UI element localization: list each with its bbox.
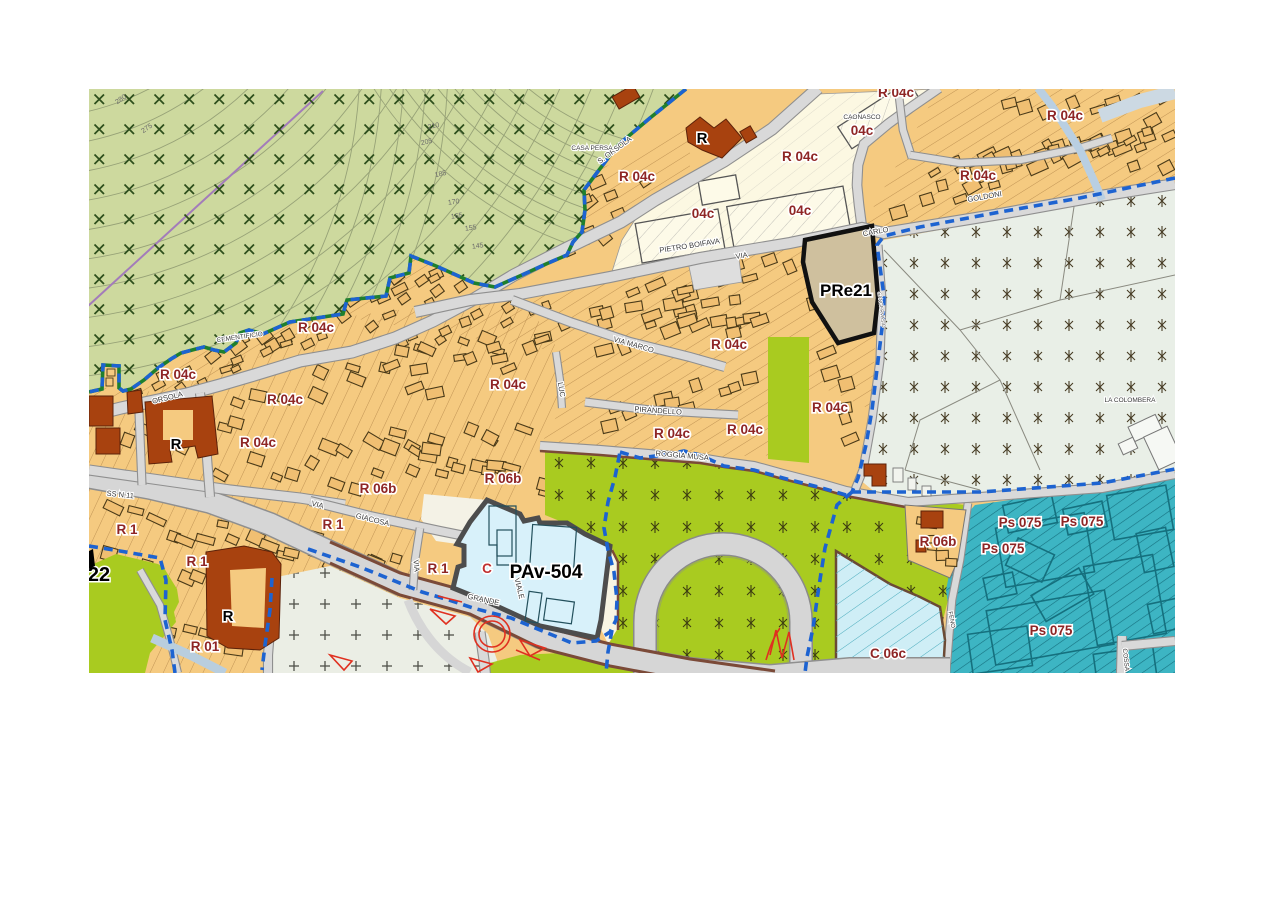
svg-text:R 04c: R 04c	[267, 392, 304, 407]
svg-text:Ps 075: Ps 075	[999, 515, 1042, 530]
svg-text:PRe21: PRe21	[820, 281, 872, 300]
svg-text:CAONASCO: CAONASCO	[843, 114, 880, 121]
svg-text:R 06b: R 06b	[485, 471, 522, 486]
svg-text:R: R	[697, 130, 708, 147]
svg-text:04c: 04c	[851, 123, 874, 138]
svg-text:R 04c: R 04c	[619, 169, 656, 184]
svg-text:R 04c: R 04c	[711, 337, 748, 352]
svg-text:C 06c: C 06c	[870, 646, 907, 661]
svg-text:R 01: R 01	[191, 639, 220, 654]
svg-text:R 04c: R 04c	[782, 149, 819, 164]
svg-text:R 1: R 1	[186, 554, 208, 569]
svg-text:04c: 04c	[789, 203, 812, 218]
svg-text:R 1: R 1	[322, 517, 344, 532]
svg-text:04c: 04c	[692, 206, 715, 221]
svg-text:R 1: R 1	[427, 561, 449, 576]
svg-text:R 04c: R 04c	[1047, 108, 1084, 123]
svg-text:CASA PERSA: CASA PERSA	[571, 145, 613, 152]
svg-text:VIA: VIA	[411, 559, 421, 572]
svg-text:R 04c: R 04c	[727, 422, 764, 437]
svg-text:Ps 075: Ps 075	[982, 541, 1025, 556]
svg-text:R 1: R 1	[116, 522, 138, 537]
svg-text:R 04c: R 04c	[160, 367, 197, 382]
svg-text:R: R	[223, 608, 234, 625]
svg-text:R 06b: R 06b	[360, 481, 397, 496]
svg-text:LA COLOMBERA: LA COLOMBERA	[1105, 397, 1157, 404]
svg-text:R 06b: R 06b	[920, 534, 957, 549]
svg-text:C: C	[482, 561, 492, 576]
svg-text:R 04c: R 04c	[298, 320, 335, 335]
svg-text:VIA: VIA	[735, 250, 748, 261]
svg-text:R: R	[171, 436, 182, 453]
svg-text:R 04c: R 04c	[960, 168, 997, 183]
svg-text:Ps 075: Ps 075	[1030, 623, 1073, 638]
svg-text:R 04c: R 04c	[490, 377, 527, 392]
svg-text:R 04c: R 04c	[240, 435, 277, 450]
svg-text:R 04c: R 04c	[654, 426, 691, 441]
svg-text:R 04c: R 04c	[812, 400, 849, 415]
svg-text:Ps 075: Ps 075	[1061, 514, 1104, 529]
